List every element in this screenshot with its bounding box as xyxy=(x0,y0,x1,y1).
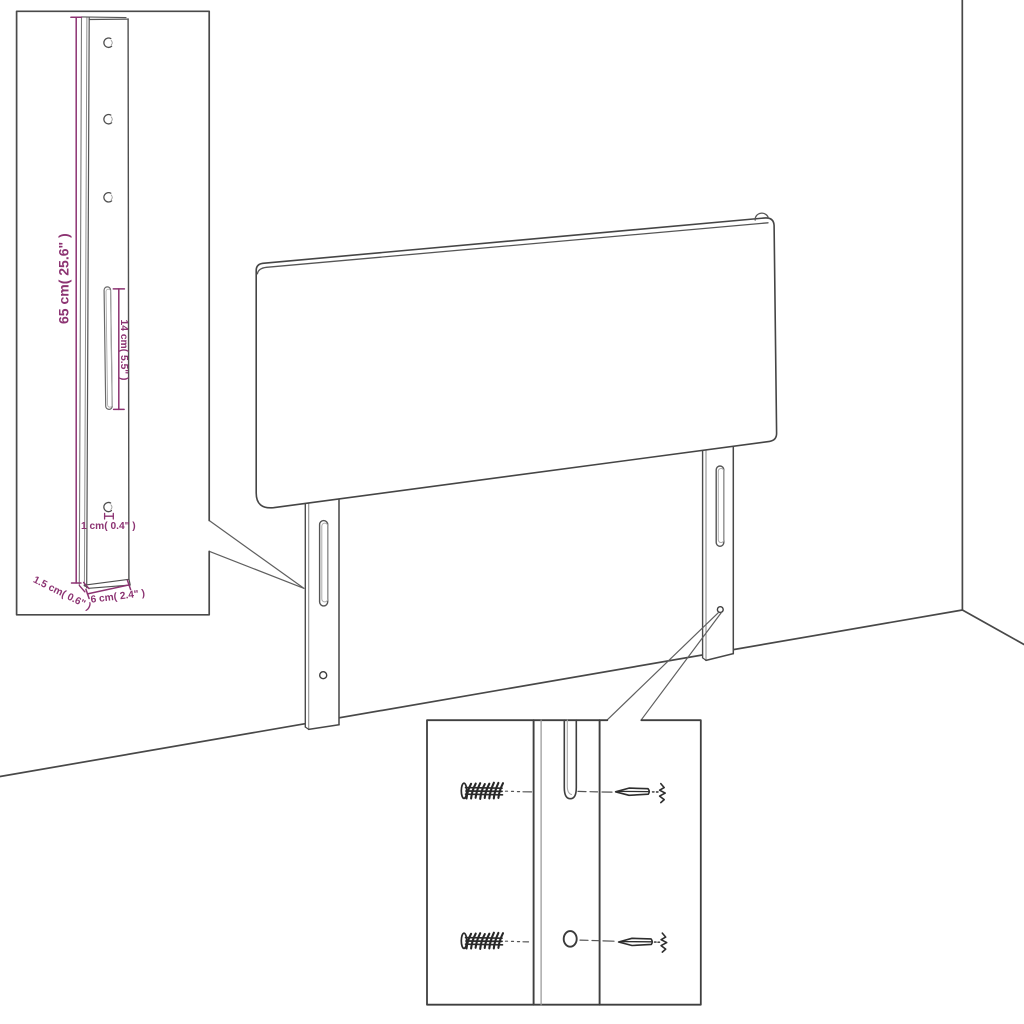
svg-text:1 cm( 0.4" ): 1 cm( 0.4" ) xyxy=(81,521,136,532)
svg-text:65 cm( 25.6" ): 65 cm( 25.6" ) xyxy=(56,233,72,324)
svg-text:14 cm( 5.5" ): 14 cm( 5.5" ) xyxy=(118,320,129,381)
